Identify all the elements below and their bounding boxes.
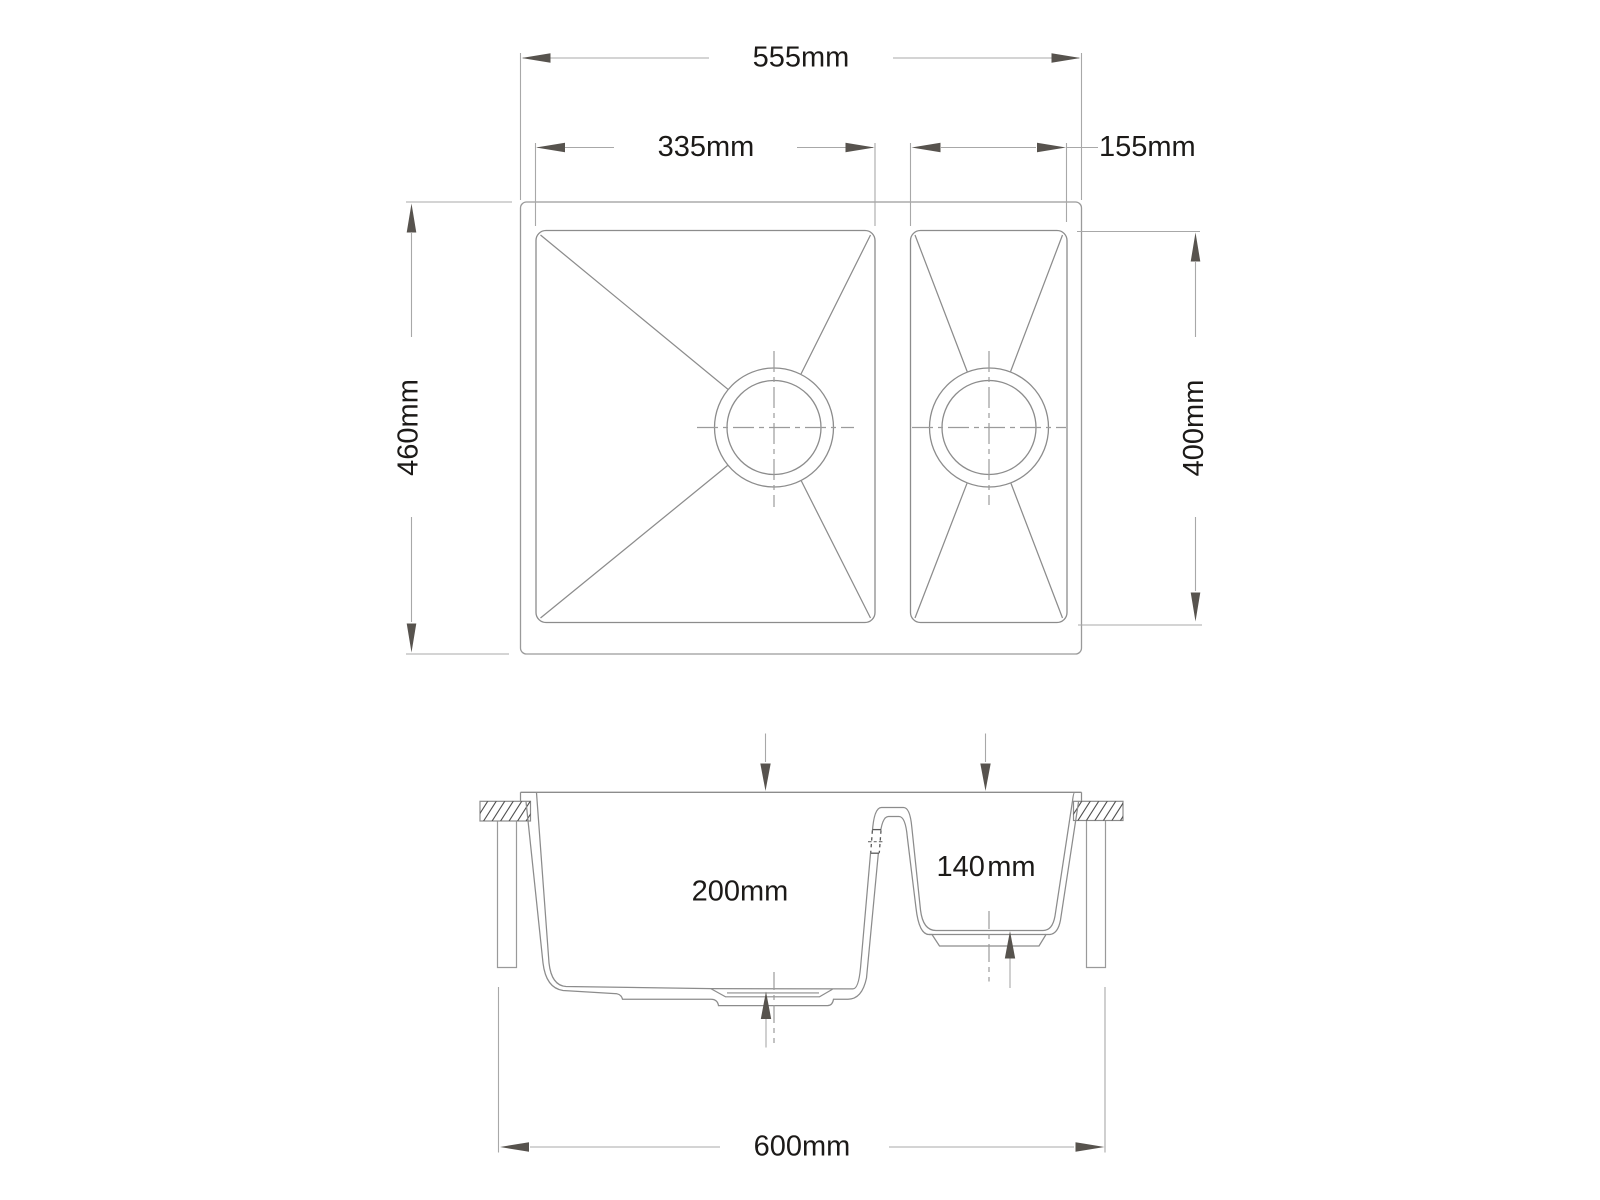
- svg-text:200mm: 200mm: [692, 876, 789, 908]
- svg-text:400mm: 400mm: [1178, 380, 1210, 477]
- svg-text:600mm: 600mm: [754, 1131, 851, 1163]
- svg-text:460mm: 460mm: [393, 379, 425, 476]
- svg-text:555mm: 555mm: [753, 42, 850, 74]
- svg-text:140 mm: 140 mm: [936, 851, 1035, 883]
- svg-text:155mm: 155mm: [1099, 131, 1196, 163]
- svg-text:335mm: 335mm: [658, 131, 755, 163]
